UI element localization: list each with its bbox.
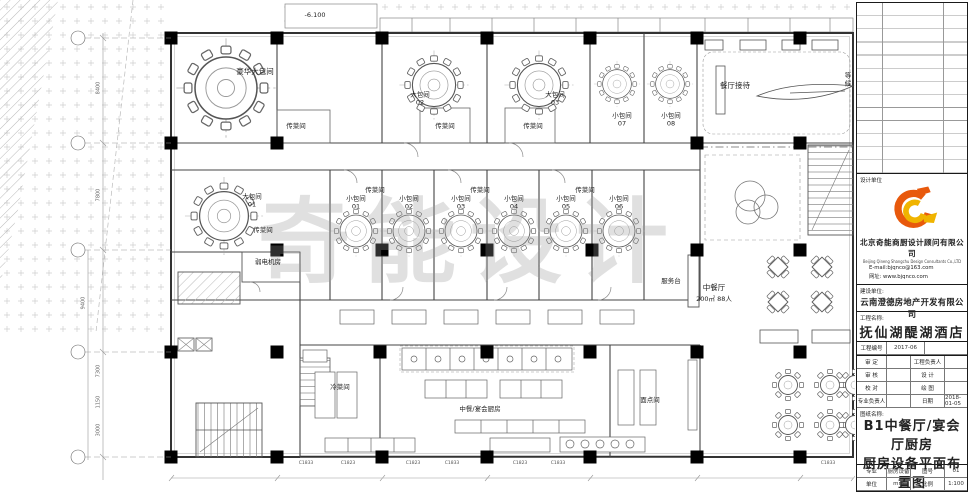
design-company-name: 北京奇能商厨设计顾问有限公司 [857, 237, 967, 259]
window-tag: C1823 [513, 461, 528, 466]
sheet-info-row: 单位 mm 比例 1:100 [857, 478, 967, 491]
scale-label: 比例 [911, 478, 945, 491]
drawing-name-section: 图纸名称: B1中餐厅/宴会厅厨房 厨房设备平面布置图 [857, 408, 967, 465]
project-label: 工程名称: [857, 312, 967, 322]
sign-value [945, 369, 967, 382]
sign-label: 日期 [911, 395, 945, 408]
window-tag: C1823 [406, 461, 421, 466]
revision-table [857, 3, 967, 174]
room-label-pass: 传菜间 [575, 186, 595, 194]
room-label-pastry: 面点间 [640, 396, 660, 404]
dimension-text: 8400 [95, 82, 101, 95]
room-label-large02: 大包间 02 [410, 91, 430, 108]
room-label-pass: 传菜间 [435, 122, 455, 130]
sheet-no-label: 图号 [911, 465, 945, 478]
client-label: 建设单位: [857, 285, 967, 295]
project-number-value: 2017-06 [887, 342, 925, 355]
room-label-small06: 小包间 06 [609, 195, 629, 212]
sign-value [887, 382, 911, 395]
dimension-text: 3000 [95, 424, 101, 437]
sign-value: 2018-01-05 [945, 395, 967, 408]
sign-label: 审 核 [857, 369, 887, 382]
room-label-luxury: 豪华大包间 [236, 67, 274, 77]
sign-label: 校 对 [857, 382, 887, 395]
room-label-small03: 小包间 03 [451, 195, 471, 212]
specialty-label: 专业 [857, 465, 887, 478]
sign-value [887, 356, 911, 369]
title-block: 设计单位 北京奇能商厨设计顾问有限公司 Beijing Qineng Shang… [856, 2, 968, 492]
company-logo [886, 184, 938, 236]
project-number-label: 工程编号 [857, 342, 887, 355]
client-section: 建设单位: 云南澄德房地产开发有限公司 [857, 285, 967, 312]
drawing-name-line1: B1中餐厅/宴会厅厨房 [857, 418, 967, 456]
window-tag: C1833 [445, 461, 460, 466]
sign-value [945, 382, 967, 395]
signature-rows: 审 定 工程负责人 审 核 设 计 校 对 绘 图 专业负责人 日期 [857, 356, 967, 408]
cad-sheet: 奇能设计 豪华大包间 大包间 02 大包间 03 小包间 07 小包间 08 餐… [0, 0, 979, 494]
signature-row: 审 定 工程负责人 [857, 356, 967, 369]
sign-label: 绘 图 [911, 382, 945, 395]
room-label-large01: 大包间 01 [242, 193, 262, 210]
room-label-small01: 小包间 01 [346, 195, 366, 212]
revision-table-divider [943, 3, 944, 173]
elevation-label: -6.100 [305, 11, 326, 19]
floor-plan-drawing [0, 0, 855, 494]
signature-row: 校 对 绘 图 [857, 382, 967, 395]
unit-value: mm [887, 478, 911, 491]
dimension-text: 1150 [95, 396, 101, 409]
project-number-row: 工程编号 2017-06 [857, 342, 967, 356]
sheet-no-value: 01 [945, 465, 967, 478]
room-label-small08: 小包间 08 [661, 112, 681, 129]
drawing-name-label: 图纸名称: [857, 408, 967, 418]
room-label-restaurant: 中餐厅 [703, 283, 726, 293]
window-tag: C1833 [821, 461, 836, 466]
room-label-pass: 传菜间 [523, 122, 543, 130]
room-label-small05: 小包间 05 [556, 195, 576, 212]
sign-label: 审 定 [857, 356, 887, 369]
revision-table-divider [882, 3, 883, 173]
design-unit-label: 设计单位 [857, 174, 967, 184]
room-label-weak-power: 弱电机房 [255, 258, 281, 266]
sign-value [887, 369, 911, 382]
room-label-small04: 小包间 04 [504, 195, 524, 212]
room-label-restaurant-capacity: 200㎡ 88人 [696, 295, 732, 303]
room-label-small02: 小包间 02 [399, 195, 419, 212]
design-company-website: 网址: www.bjqnco.com [857, 272, 967, 280]
room-label-pass: 传菜间 [365, 186, 385, 194]
signature-row: 专业负责人 日期 2018-01-05 [857, 395, 967, 408]
scale-value: 1:100 [945, 478, 967, 491]
sheet-info-rows: 专业 厨房设备 图号 01 单位 mm 比例 1:100 [857, 465, 967, 491]
sign-label: 设 计 [911, 369, 945, 382]
specialty-value: 厨房设备 [887, 465, 911, 478]
sign-value [887, 395, 911, 408]
signature-row: 审 核 设 计 [857, 369, 967, 382]
dimension-text: 9400 [80, 297, 86, 310]
sign-label: 专业负责人 [857, 395, 887, 408]
room-label-cold-dish: 冷菜间 [330, 383, 350, 391]
sheet-info-row: 专业 厨房设备 图号 01 [857, 465, 967, 478]
room-label-main-kitchen: 中餐/宴会厨房 [459, 405, 500, 413]
room-label-pass: 传菜间 [470, 186, 490, 194]
room-label-large03: 大包间 03 [545, 91, 565, 108]
room-label-small07: 小包间 07 [612, 112, 632, 129]
dimension-text: 7300 [95, 365, 101, 378]
dimension-text: 7800 [95, 189, 101, 202]
room-label-pass: 传菜间 [253, 226, 273, 234]
design-unit-section: 设计单位 北京奇能商厨设计顾问有限公司 Beijing Qineng Shang… [857, 174, 967, 285]
project-name: 抚仙湖醍湖酒店 [857, 322, 967, 341]
project-number-spare [925, 342, 967, 355]
window-tag: C1823 [341, 461, 356, 466]
unit-label: 单位 [857, 478, 887, 491]
floor-plan: 奇能设计 豪华大包间 大包间 02 大包间 03 小包间 07 小包间 08 餐… [0, 0, 855, 494]
design-company-name-en: Beijing Qineng Shangchu Design Consultan… [861, 259, 962, 264]
project-section: 工程名称: 抚仙湖醍湖酒店 [857, 312, 967, 342]
sign-value [945, 356, 967, 369]
room-label-reception: 餐厅接待 [720, 81, 750, 91]
room-label-service-desk: 服务台 [661, 277, 681, 285]
room-label-waiting: 等候 [845, 72, 852, 89]
design-company-email: E-mail:bjqnco@163.com [857, 265, 967, 271]
window-tag: C1833 [299, 461, 314, 466]
room-label-pass: 传菜间 [286, 122, 306, 130]
window-tag: C1833 [551, 461, 566, 466]
sign-label: 工程负责人 [911, 356, 945, 369]
